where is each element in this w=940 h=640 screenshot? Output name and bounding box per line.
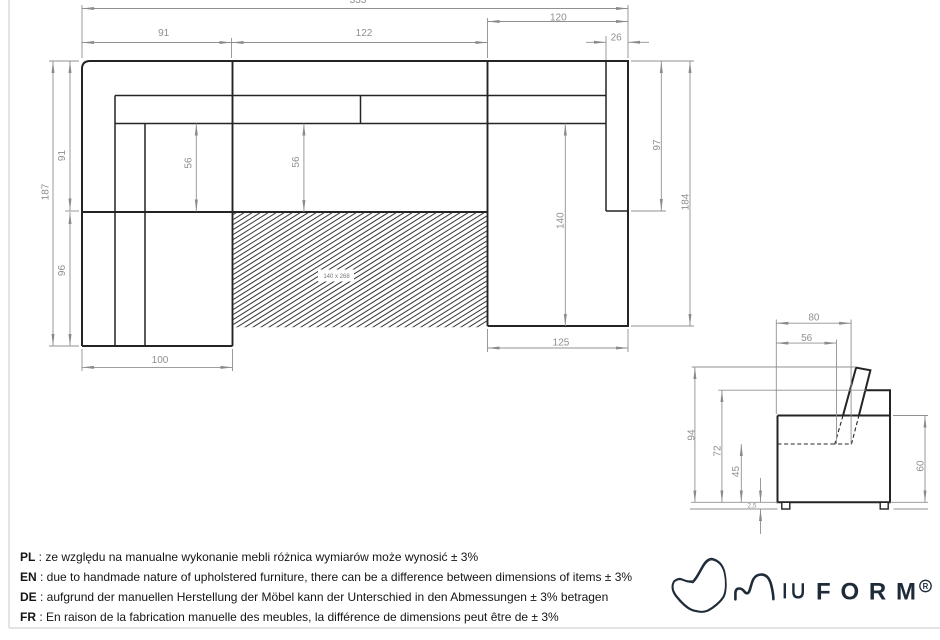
- svg-text:91: 91: [158, 28, 170, 39]
- svg-text:184: 184: [681, 193, 692, 210]
- svg-text:140: 140: [556, 212, 567, 229]
- svg-text:96: 96: [57, 265, 68, 277]
- svg-text:R: R: [923, 582, 929, 591]
- svg-text:125: 125: [553, 338, 570, 349]
- svg-text:140 x 268: 140 x 268: [323, 274, 350, 280]
- svg-text:56: 56: [291, 156, 302, 168]
- svg-text:122: 122: [356, 28, 373, 39]
- svg-text:2,5: 2,5: [747, 503, 756, 510]
- svg-text:26: 26: [611, 32, 623, 43]
- svg-text:100: 100: [152, 355, 169, 366]
- svg-text:187: 187: [41, 183, 52, 200]
- svg-text:60: 60: [915, 460, 926, 472]
- svg-text:45: 45: [731, 466, 742, 478]
- svg-text:72: 72: [712, 445, 723, 457]
- svg-text:120: 120: [550, 12, 567, 23]
- svg-text:97: 97: [652, 139, 663, 151]
- svg-text:56: 56: [183, 157, 194, 169]
- svg-text:91: 91: [57, 150, 68, 162]
- svg-text:94: 94: [686, 429, 697, 441]
- svg-text:56: 56: [801, 333, 813, 344]
- svg-text:FORM: FORM: [816, 579, 926, 606]
- svg-text:333: 333: [350, 0, 367, 6]
- svg-text:80: 80: [808, 313, 820, 324]
